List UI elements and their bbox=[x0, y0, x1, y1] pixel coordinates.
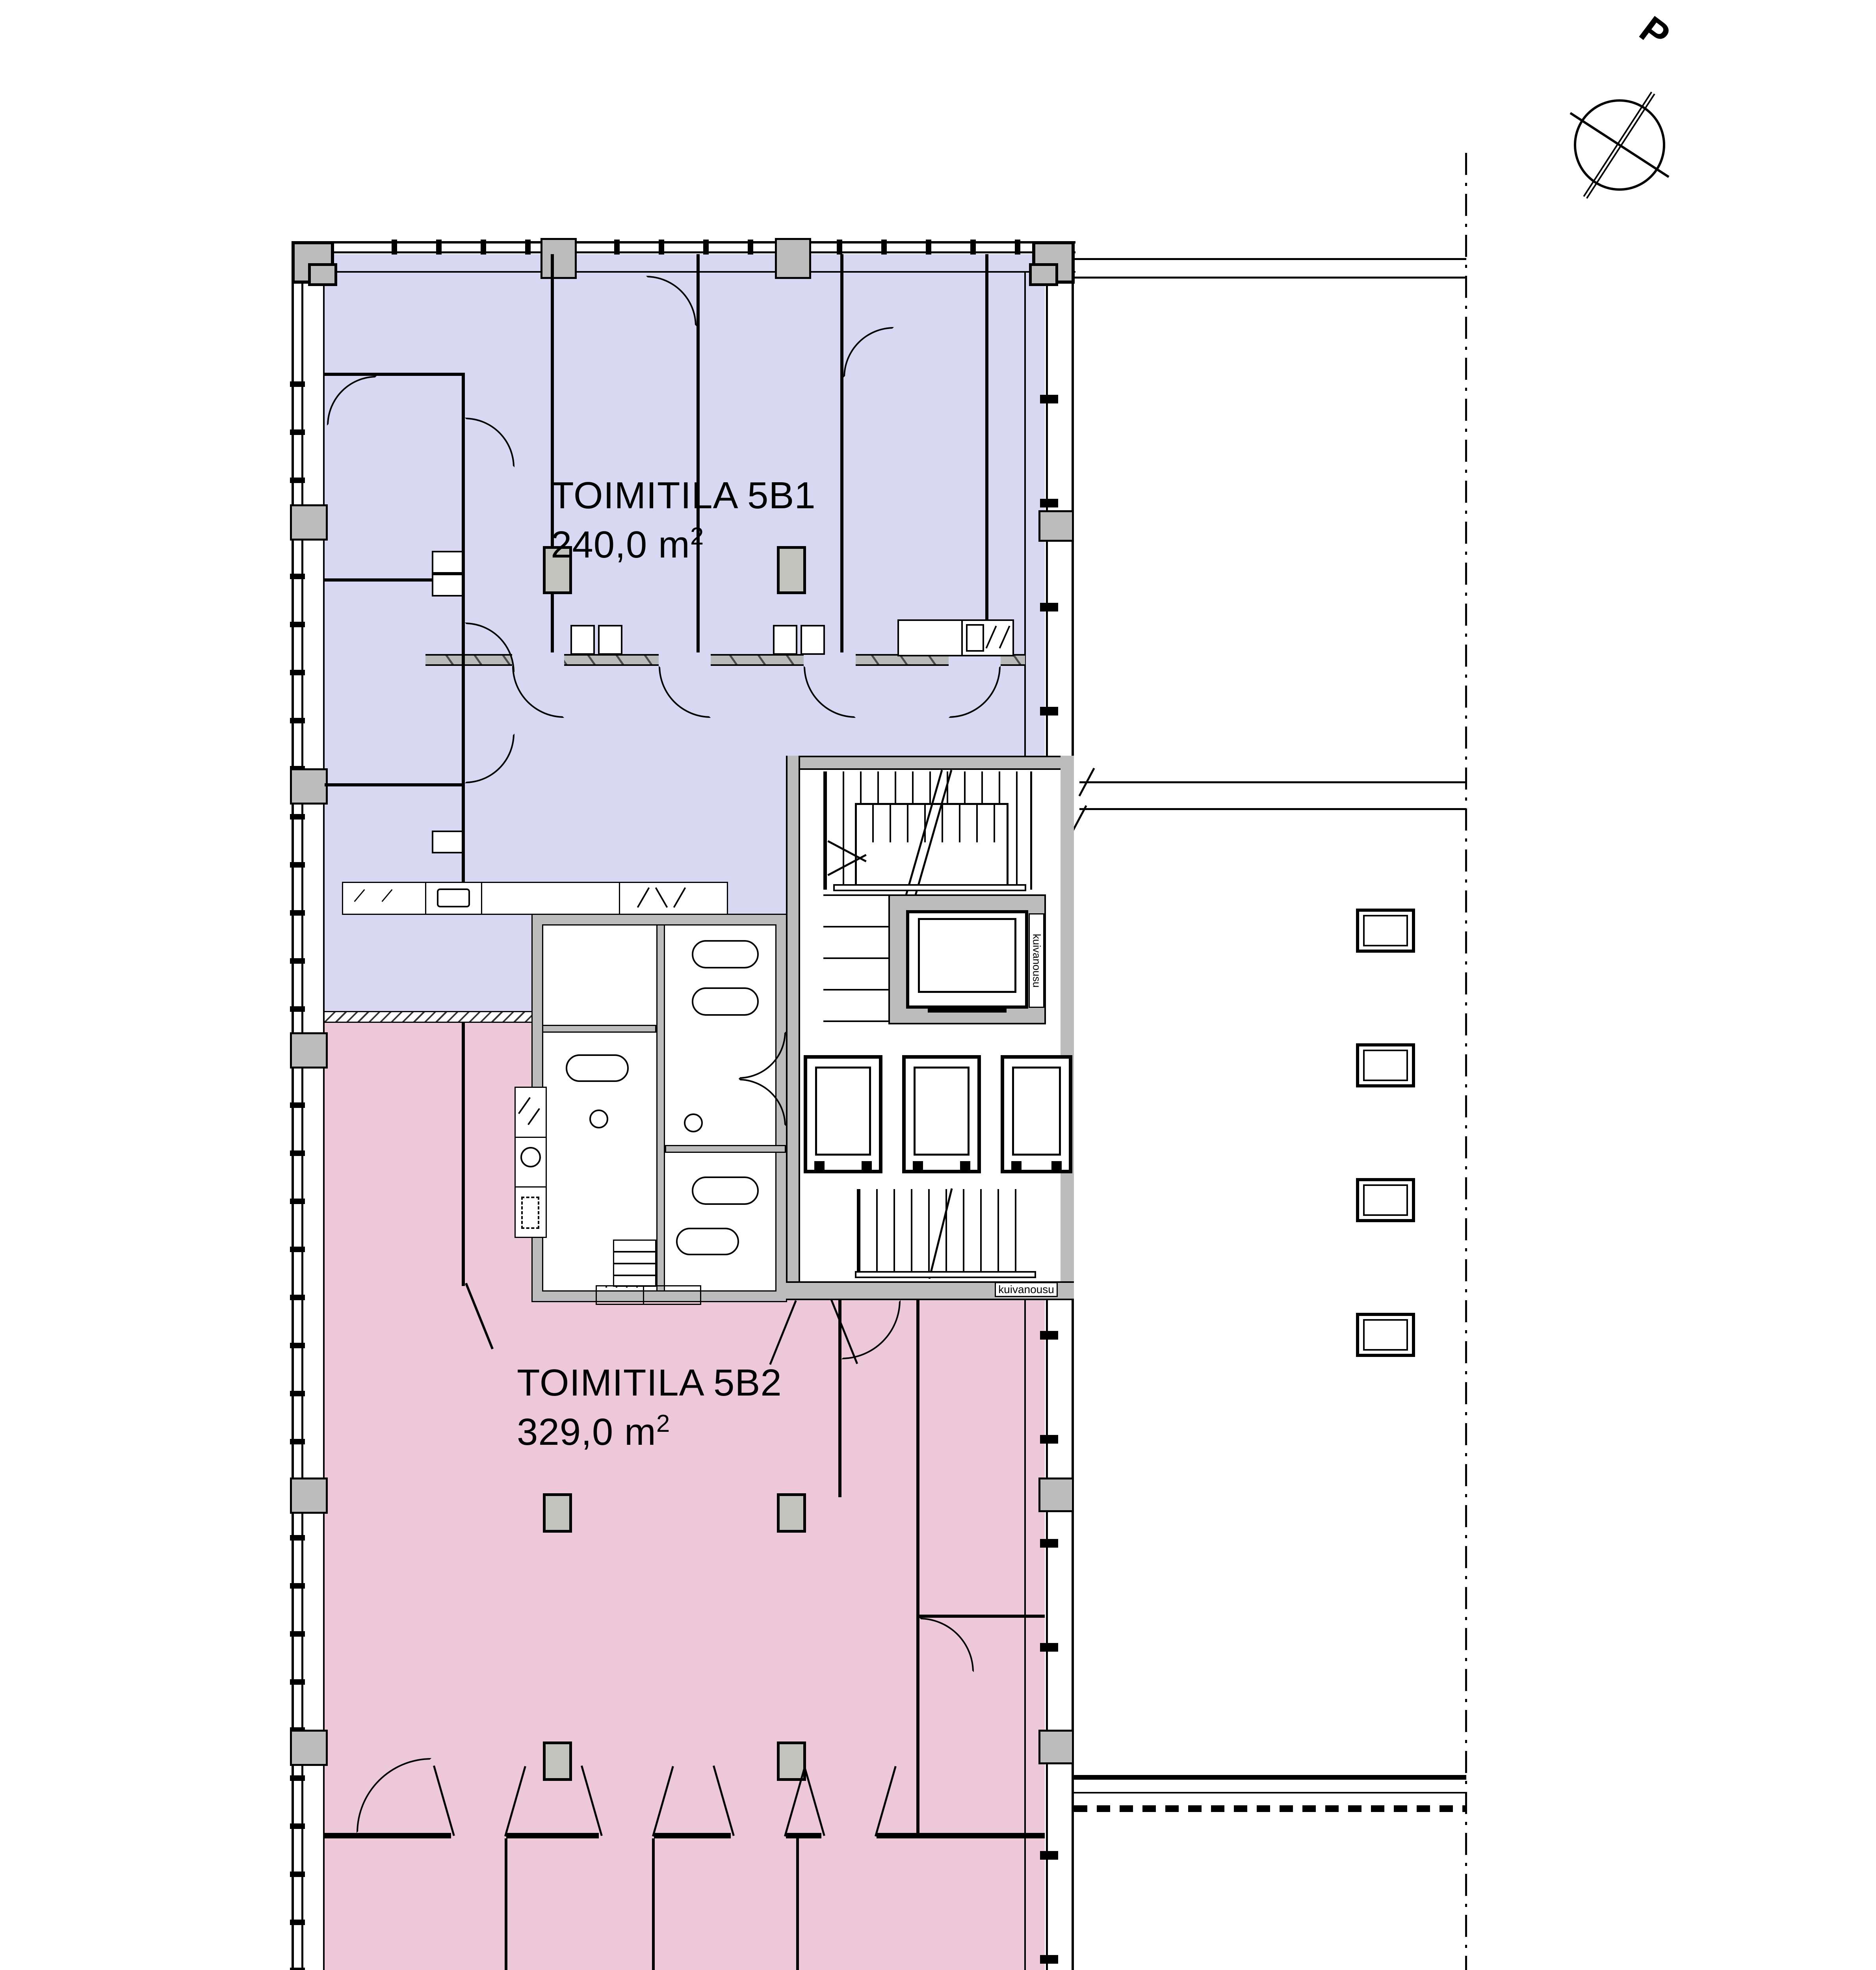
wc-divider bbox=[656, 924, 665, 1292]
door-opening bbox=[659, 652, 711, 667]
glazing-line bbox=[1024, 271, 1026, 758]
window-mullions-left bbox=[290, 339, 305, 1970]
core-wall bbox=[1061, 756, 1074, 1300]
zone-boundary-hatch bbox=[325, 1011, 533, 1023]
elevator-shaft bbox=[1001, 1055, 1072, 1173]
wall-column bbox=[775, 238, 811, 279]
partition-wall bbox=[505, 1838, 507, 1970]
window-mullions-top bbox=[353, 240, 1028, 255]
corner-column bbox=[1029, 263, 1058, 286]
wall-column bbox=[1038, 1477, 1074, 1512]
zone-5b2-area: 329,0 m2 bbox=[517, 1408, 782, 1457]
fixture bbox=[570, 625, 595, 655]
stair-side-steps bbox=[823, 894, 888, 1024]
kitchen-strip bbox=[342, 882, 728, 915]
fixture bbox=[773, 625, 797, 655]
stair-landing-bar bbox=[855, 1271, 1036, 1278]
pillar bbox=[1356, 1178, 1415, 1222]
fixture bbox=[801, 625, 825, 655]
zone-5b2-name: TOIMITILA 5B2 bbox=[517, 1359, 782, 1408]
radiator bbox=[432, 831, 463, 853]
structural-column bbox=[543, 1741, 572, 1781]
core: kuivanousu bbox=[786, 756, 1074, 1300]
wall-column bbox=[290, 1730, 328, 1766]
reception-desk bbox=[596, 1285, 701, 1305]
connector-line bbox=[1074, 277, 1466, 279]
partition-wall bbox=[325, 783, 463, 786]
partition-wall bbox=[697, 254, 700, 655]
door-opening bbox=[731, 1831, 786, 1840]
toilet bbox=[692, 987, 759, 1016]
structural-column bbox=[543, 1493, 572, 1533]
bridge-edge bbox=[1074, 1792, 1466, 1793]
glazing-line bbox=[1024, 1300, 1026, 1970]
bridge-dashed-edge bbox=[1074, 1805, 1466, 1812]
zone-5b2-fill bbox=[786, 1300, 1045, 1970]
connector-line bbox=[1079, 808, 1466, 810]
wall-column bbox=[541, 238, 577, 279]
kitchenette-counter bbox=[897, 619, 1014, 656]
riser-label-box: kuivanousu bbox=[995, 1282, 1058, 1297]
elevator-shaft bbox=[804, 1055, 882, 1173]
partition-wall bbox=[985, 254, 988, 655]
partition-wall bbox=[462, 373, 465, 882]
wall-column bbox=[1038, 510, 1074, 542]
radiator bbox=[432, 551, 463, 574]
wall-column bbox=[290, 1032, 328, 1069]
toilet bbox=[692, 1176, 759, 1205]
riser-label: kuivanousu bbox=[1031, 934, 1043, 988]
partition-wall bbox=[652, 1838, 655, 1970]
riser-label-box: kuivanousu bbox=[1029, 913, 1044, 1008]
core-wall bbox=[786, 756, 1074, 770]
partition-wall bbox=[840, 254, 843, 655]
door-opening bbox=[599, 1831, 654, 1840]
radiator bbox=[432, 574, 463, 597]
zone-5b1-label: TOIMITILA 5B1 240,0 m2 bbox=[551, 471, 816, 570]
wall-column bbox=[290, 1477, 328, 1514]
wc-divider bbox=[542, 1025, 656, 1033]
pillar bbox=[1356, 1043, 1415, 1087]
service-shaft bbox=[515, 1087, 547, 1238]
sink bbox=[589, 1110, 608, 1128]
zone-5b2-label: TOIMITILA 5B2 329,0 m2 bbox=[517, 1359, 782, 1457]
partition-wall bbox=[838, 1300, 841, 1497]
riser-label: kuivanousu bbox=[998, 1283, 1054, 1296]
elevator-inner bbox=[918, 918, 1016, 993]
corner-column bbox=[308, 263, 337, 286]
connector-line bbox=[1074, 258, 1466, 260]
stair-lower bbox=[857, 1189, 1032, 1278]
property-dashdot-line bbox=[1465, 153, 1467, 1970]
stair-landing-bar bbox=[833, 884, 1026, 891]
partition-wall bbox=[916, 1615, 1045, 1618]
elevator-shaft bbox=[902, 1055, 981, 1173]
corridor-wall bbox=[325, 1833, 1045, 1838]
zone-5b1-name: TOIMITILA 5B1 bbox=[551, 471, 816, 520]
shelf-steps bbox=[613, 1240, 656, 1287]
glazing-line bbox=[333, 271, 1075, 273]
door-opening bbox=[821, 1831, 877, 1840]
sink bbox=[684, 1113, 703, 1132]
toilet bbox=[676, 1228, 739, 1255]
partition-wall bbox=[916, 1300, 919, 1834]
toilet bbox=[566, 1054, 629, 1082]
elevator-door bbox=[928, 1006, 1007, 1013]
pillar bbox=[1356, 909, 1415, 953]
core-wall bbox=[786, 756, 800, 1300]
fixture bbox=[598, 625, 622, 655]
partition-wall bbox=[325, 373, 463, 376]
structural-column bbox=[777, 1493, 806, 1533]
wall-column bbox=[1038, 1730, 1074, 1764]
north-label: P bbox=[1631, 8, 1677, 58]
wall-column bbox=[290, 768, 328, 805]
partition-wall bbox=[462, 1023, 465, 1286]
wc-divider bbox=[665, 1145, 786, 1153]
partition-wall bbox=[551, 254, 554, 655]
door-opening bbox=[512, 652, 564, 667]
door-opening bbox=[451, 1831, 506, 1840]
bridge-edge bbox=[1074, 1775, 1466, 1780]
toilet bbox=[692, 940, 759, 968]
pillar bbox=[1356, 1313, 1415, 1357]
wall-column bbox=[290, 504, 328, 541]
connector-line bbox=[1079, 781, 1466, 783]
drawing-sheet: P bbox=[0, 0, 1876, 1970]
partition-wall bbox=[796, 1838, 799, 1970]
zone-5b1-area: 240,0 m2 bbox=[551, 520, 816, 570]
